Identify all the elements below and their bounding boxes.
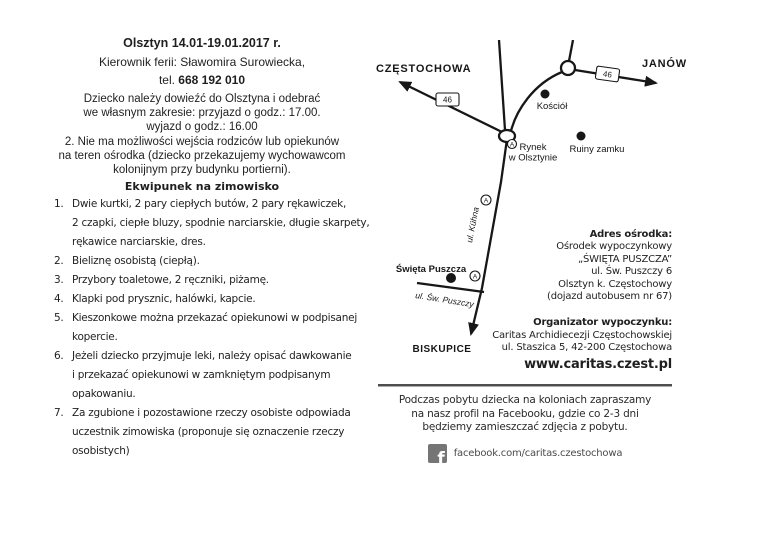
item-number: 7.	[54, 404, 64, 423]
equipment-heading: Ekwipunek na zimowisko	[28, 180, 376, 194]
item-text: Przybory toaletowe, 2 ręczniki, piżamę.	[72, 274, 269, 286]
ruins-dot	[577, 132, 586, 141]
road-north	[569, 40, 573, 61]
church-label: Kościół	[537, 101, 569, 112]
bus-stop-marker: A	[481, 195, 491, 205]
market-label-line1: Rynek	[520, 142, 547, 153]
road-sign-46-west: 46	[436, 93, 459, 106]
item-number: 1.	[54, 195, 64, 214]
leaflet-page: Olsztyn 14.01-19.01.2017 r. Kierownik fe…	[0, 0, 768, 543]
item-number: 4.	[54, 290, 64, 309]
website-url: www.caritas.czest.pl	[412, 359, 672, 371]
item-text: Dwie kurtki, 2 pary ciepłych butów, 2 pa…	[72, 198, 369, 248]
item-text: Bieliznę osobistą (ciepłą).	[72, 255, 200, 267]
junction-circle	[561, 61, 575, 75]
item-number: 5.	[54, 309, 64, 328]
road-sign-46-east: 46	[595, 66, 620, 82]
bus-stop-letter: A	[484, 198, 489, 205]
info-column: Olsztyn 14.01-19.01.2017 r. Kierownik fe…	[28, 36, 376, 461]
item-text: Jeżeli dziecko przyjmuje leki, należy op…	[72, 350, 351, 400]
phone-line: tel. 668 192 010	[28, 73, 376, 87]
equipment-list: 1.Dwie kurtki, 2 pary ciepłych butów, 2 …	[28, 195, 376, 461]
camp-manager: Kierownik ferii: Sławomira Surowiecka,	[28, 55, 376, 69]
road-sign-number: 46	[602, 69, 613, 79]
item-text: Kieszonkowe można przekazać opiekunowi w…	[72, 312, 357, 343]
transport-note: Dziecko należy dowieźć do Olsztyna i ode…	[28, 92, 376, 177]
equipment-item: 6.Jeżeli dziecko przyjmuje leki, należy …	[28, 347, 376, 404]
organizer-heading: Organizator wypoczynku:	[412, 317, 672, 329]
address-heading: Adres ośrodka:	[412, 229, 672, 241]
camp-title: Olsztyn 14.01-19.01.2017 r.	[28, 36, 376, 51]
resort-address: Ośrodek wypoczynkowy „ŚWIĘTA PUSZCZA” ul…	[412, 241, 672, 303]
road-to-czestochowa	[400, 82, 502, 132]
item-text: Za zgubione i pozostawione rzeczy osobis…	[72, 407, 351, 457]
bus-stop-letter: A	[510, 142, 515, 149]
item-number: 2.	[54, 252, 64, 271]
janow-label: JANÓW	[642, 57, 687, 70]
equipment-item: 7.Za zgubione i pozostawione rzeczy osob…	[28, 404, 376, 461]
item-text: Klapki pod prysznic, halówki, kapcie.	[72, 293, 255, 305]
facebook-icon: f	[428, 444, 447, 463]
item-number: 3.	[54, 271, 64, 290]
equipment-item: 3.Przybory toaletowe, 2 ręczniki, piżamę…	[28, 271, 376, 290]
equipment-item: 5.Kieszonkowe można przekazać opiekunowi…	[28, 309, 376, 347]
item-number: 6.	[54, 347, 64, 366]
facebook-note: Podczas pobytu dziecka na koloniach zapr…	[378, 394, 672, 435]
market-label-line2: w Olsztynie	[508, 153, 558, 164]
czestochowa-label: CZĘSTOCHOWA	[376, 63, 471, 75]
facebook-url: facebook.com/caritas.czestochowa	[454, 448, 623, 459]
phone-number: 668 192 010	[178, 73, 245, 87]
facebook-icon-letter: f	[437, 451, 444, 463]
equipment-item: 1.Dwie kurtki, 2 pary ciepłych butów, 2 …	[28, 195, 376, 252]
ruins-label: Ruiny zamku	[570, 144, 625, 155]
phone-label: tel.	[159, 73, 178, 87]
organizer-address: Caritas Archidiecezji Częstochowskiej ul…	[412, 330, 672, 355]
address-block: Adres ośrodka: Ośrodek wypoczynkowy „ŚWI…	[412, 229, 672, 371]
divider-line	[378, 384, 672, 387]
church-dot	[541, 90, 550, 99]
bus-stop-marker: A	[508, 140, 517, 149]
equipment-item: 2.Bieliznę osobistą (ciepłą).	[28, 252, 376, 271]
facebook-row: f facebook.com/caritas.czestochowa	[378, 444, 672, 463]
equipment-item: 4.Klapki pod prysznic, halówki, kapcie.	[28, 290, 376, 309]
road-sign-number: 46	[443, 96, 452, 105]
